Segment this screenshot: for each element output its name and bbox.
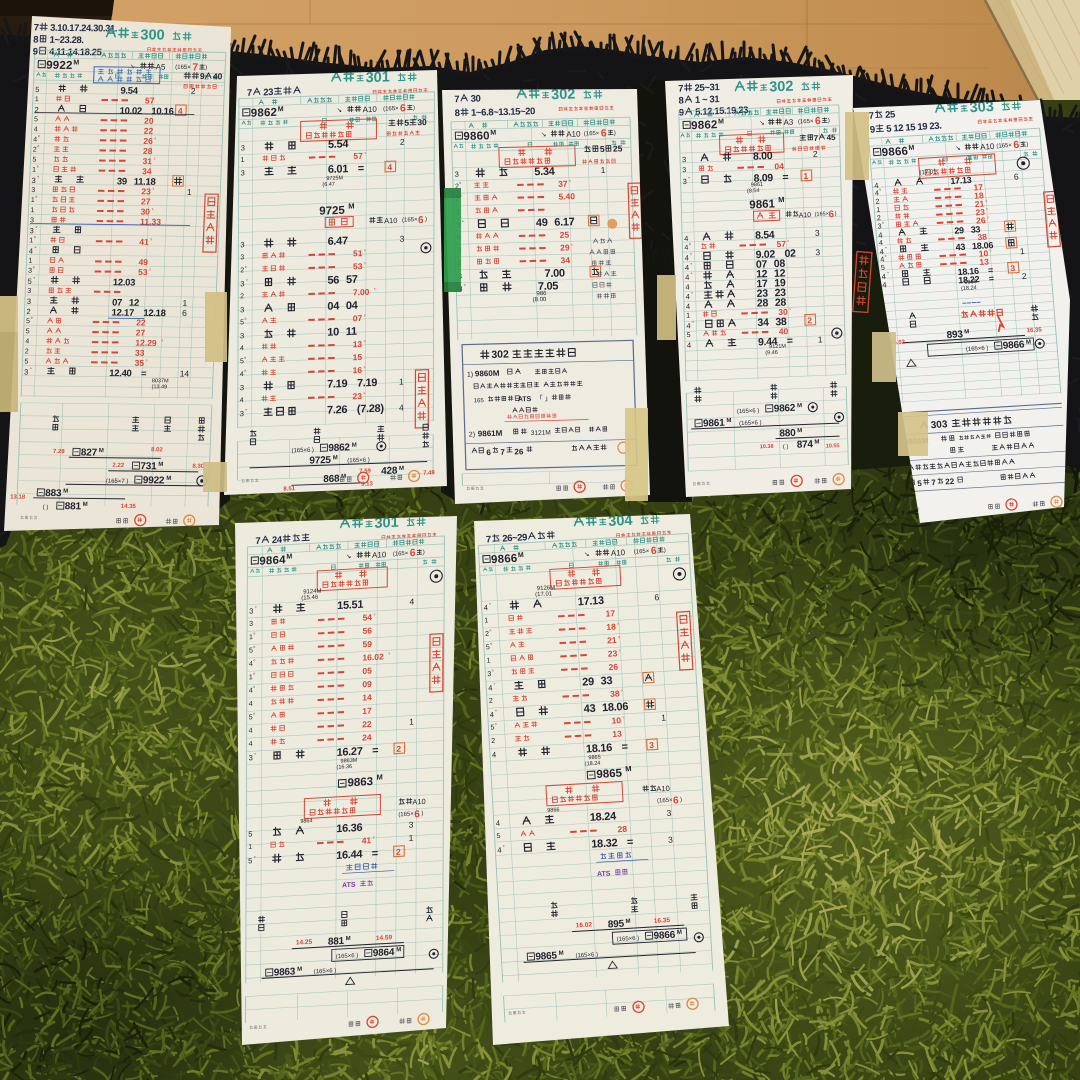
svg-text:4: 4 [488,683,493,692]
svg-text:(15.46: (15.46 [301,595,319,602]
svg-text:7.19: 7.19 [357,377,377,390]
svg-text:(165×7 ): (165×7 ) [106,479,129,485]
svg-text:3: 3 [649,740,655,750]
svg-text:43: 43 [583,703,595,716]
svg-text:49: 49 [536,217,548,229]
svg-text:5: 5 [881,265,886,272]
svg-text:1: 1 [803,171,808,181]
svg-text:25: 25 [560,230,570,240]
svg-text:5: 5 [27,277,32,286]
svg-text:↘: ↘ [584,551,590,558]
svg-text:°: ° [254,855,256,861]
svg-text:1: 1 [30,207,34,214]
svg-text:°: ° [690,262,692,268]
svg-text:M: M [376,772,382,781]
svg-text:8: 8 [455,108,460,119]
svg-text:−−−−: −−−− [962,298,982,308]
svg-text:9864: 9864 [373,947,395,959]
svg-text:7.28: 7.28 [53,449,66,455]
svg-text:(13.49: (13.49 [151,384,167,390]
svg-text:53: 53 [138,267,148,277]
svg-text:54: 54 [363,612,373,623]
svg-text:): ) [680,797,682,803]
svg-text:°: ° [255,606,257,612]
svg-text:°: ° [503,845,505,851]
svg-text:°: ° [462,220,464,226]
svg-text:(165×: (165× [798,119,814,126]
svg-text:(165×: (165× [584,131,600,137]
svg-text:(165×: (165× [402,217,418,224]
svg-text:A10: A10 [363,105,378,115]
svg-text:2: 2 [877,215,882,222]
svg-text:1: 1 [249,634,253,641]
svg-text:4: 4 [687,341,691,350]
svg-text:16.27: 16.27 [337,746,363,759]
svg-text:): ) [664,548,666,554]
svg-text:4: 4 [33,137,37,144]
svg-text:59: 59 [362,639,372,650]
svg-text:12.40: 12.40 [109,368,132,379]
svg-text:M: M [908,145,915,152]
svg-text:4: 4 [686,292,690,301]
svg-text:(17.01: (17.01 [919,169,937,176]
svg-text:6: 6 [829,209,835,220]
svg-text:30: 30 [470,94,480,105]
svg-text:3: 3 [682,167,686,174]
svg-text:22: 22 [362,719,372,730]
svg-text:9: 9 [869,125,875,136]
svg-text:4: 4 [492,750,497,759]
svg-text:5: 5 [404,118,409,128]
svg-text:3: 3 [409,819,414,829]
svg-text:9861M: 9861M [478,429,503,439]
svg-text:ˢ: ˢ [374,287,376,293]
svg-text:9: 9 [679,107,684,118]
svg-text:1: 1 [818,334,823,344]
svg-text:9866: 9866 [547,807,560,814]
svg-text:26: 26 [514,447,524,456]
svg-text:22: 22 [945,477,955,487]
svg-text:14: 14 [362,692,372,703]
svg-text:23: 23 [353,391,363,401]
svg-text:34: 34 [142,166,152,176]
svg-text:(165×6 ): (165×6 ) [336,953,359,960]
svg-text:7.00: 7.00 [544,268,565,281]
svg-text:302: 302 [769,79,794,96]
svg-text:9862: 9862 [691,119,718,132]
svg-text:26: 26 [143,136,153,146]
svg-text:M: M [346,936,351,942]
svg-text:4: 4 [240,345,244,352]
svg-text:4: 4 [249,687,253,694]
svg-text:9862: 9862 [328,442,350,454]
svg-text:(17.01: (17.01 [535,591,553,598]
svg-text:57: 57 [353,151,363,161]
svg-text:M: M [718,118,724,125]
svg-text:=: = [621,741,628,753]
svg-text:°: ° [692,321,694,327]
svg-text:303: 303 [930,419,948,431]
svg-text:4: 4 [879,240,884,247]
svg-text:2: 2 [396,744,401,754]
svg-text:=: = [627,836,634,848]
svg-text:56: 56 [327,274,339,286]
svg-text:13.18: 13.18 [10,495,26,501]
svg-text:39: 39 [117,176,127,187]
svg-text:24: 24 [362,732,372,743]
svg-text:8.54: 8.54 [755,229,775,242]
svg-text:M: M [490,130,496,137]
svg-text:): ) [425,217,427,223]
svg-text:04: 04 [327,300,340,312]
svg-text:4: 4 [685,282,689,291]
svg-text:1~23.28.: 1~23.28. [49,35,83,46]
svg-text:ˢ: ˢ [364,365,366,371]
svg-text:ˢ: ˢ [364,391,366,397]
svg-text:A10: A10 [799,212,812,219]
svg-text:4: 4 [387,162,392,172]
svg-text:7: 7 [192,62,198,73]
svg-text:8.02: 8.02 [151,447,164,453]
svg-text:↘: ↘ [541,131,547,138]
svg-text:9866: 9866 [1002,339,1025,351]
svg-text:1: 1 [409,716,414,726]
svg-text:(7.28): (7.28) [357,403,385,416]
svg-text:9.54: 9.54 [120,86,139,97]
svg-text:(18.24: (18.24 [585,761,601,768]
svg-text:(165×: (165× [398,811,414,818]
svg-text:24: 24 [272,535,283,547]
svg-text:⁰: ⁰ [253,685,255,690]
svg-text:6: 6 [414,809,420,820]
svg-text:2: 2 [191,86,196,96]
svg-text:4: 4 [878,231,883,240]
svg-text:M: M [625,919,630,925]
svg-text:4: 4 [25,338,29,345]
svg-text:2: 2 [33,147,37,154]
svg-text:=: = [372,848,378,860]
svg-text:(165×: (165× [657,798,673,805]
svg-text:2: 2 [240,293,244,300]
svg-text:5: 5 [248,856,252,865]
svg-text:8.30: 8.30 [192,464,205,470]
svg-text:9863: 9863 [347,776,373,789]
svg-text:3: 3 [815,247,820,257]
svg-text:5: 5 [26,318,30,325]
svg-text:A10: A10 [566,129,581,138]
svg-text:(165×: (165× [175,65,191,71]
svg-text:7.19: 7.19 [327,378,347,391]
svg-text:13: 13 [353,339,363,349]
svg-text:A10: A10 [980,142,995,152]
svg-text:9865: 9865 [596,767,623,780]
svg-text:16.44: 16.44 [336,848,363,861]
svg-text:4: 4 [249,701,253,708]
svg-text:1: 1 [661,713,667,723]
svg-text:6.47: 6.47 [328,235,348,248]
svg-text:3: 3 [240,409,244,418]
svg-text:M: M [778,195,784,204]
svg-text:04: 04 [774,161,784,171]
svg-text:°: ° [254,752,256,758]
svg-text:6: 6 [815,115,821,127]
svg-text:7.26: 7.26 [327,404,347,417]
svg-text:5: 5 [249,647,253,654]
svg-text:3: 3 [454,170,458,179]
svg-text:16.02: 16.02 [362,651,384,662]
svg-text:38: 38 [610,688,620,699]
svg-text:6: 6 [400,103,406,114]
svg-text:A10: A10 [611,548,626,558]
svg-text:5: 5 [240,358,244,365]
svg-text:57: 57 [346,274,358,286]
svg-text:18.16: 18.16 [586,742,613,755]
svg-text:⁰: ⁰ [459,181,461,186]
svg-text:16: 16 [353,365,363,375]
svg-text:3: 3 [249,621,253,628]
svg-text:1~6.8~13.15~20: 1~6.8~13.15~20 [471,106,535,119]
svg-text:14.35: 14.35 [121,504,137,510]
svg-text:2: 2 [875,198,880,205]
svg-text:°: ° [37,175,39,181]
svg-text:6: 6 [418,215,424,226]
svg-text:6.17: 6.17 [554,216,575,229]
svg-text:⁰: ⁰ [253,659,255,664]
svg-text:17.13: 17.13 [577,595,604,608]
svg-text:8: 8 [678,95,683,106]
svg-text:9922: 9922 [46,60,73,72]
svg-text:(165×: (165× [393,551,409,558]
svg-text:22: 22 [136,317,146,327]
svg-text:°: ° [493,683,495,689]
svg-text:16.36: 16.36 [336,822,362,835]
svg-text:「 」: 「 」 [536,394,552,402]
svg-text:40: 40 [213,71,223,81]
svg-text:1: 1 [876,207,881,214]
svg-text:7: 7 [678,83,683,94]
svg-text:1: 1 [35,96,39,103]
svg-text:(6.47: (6.47 [322,182,335,188]
svg-text:9862: 9862 [774,403,796,415]
svg-text:⁰: ⁰ [254,645,256,650]
svg-text:5: 5 [248,829,252,838]
svg-text:05: 05 [362,665,372,676]
svg-text:=: = [787,335,793,347]
svg-text:): ) [413,105,415,111]
svg-text:7: 7 [255,536,260,547]
svg-text:M: M [99,448,104,454]
svg-text:49: 49 [138,257,148,267]
svg-text:4: 4 [686,302,690,311]
svg-text:7.49: 7.49 [423,470,435,476]
svg-text:04: 04 [346,300,359,312]
svg-text:3: 3 [249,753,253,762]
svg-text:5: 5 [249,714,253,721]
svg-text:3: 3 [668,834,674,844]
svg-text:⁰: ⁰ [253,712,255,717]
svg-text:⁰: ⁰ [244,356,246,361]
svg-text:41: 41 [139,237,149,247]
svg-text:A10: A10 [412,797,425,807]
svg-text:57: 57 [145,95,155,105]
svg-text:17: 17 [362,705,372,716]
svg-text:29: 29 [560,242,570,252]
svg-text:(165×6 ): (165×6 ) [737,408,760,415]
svg-text:21: 21 [607,635,617,646]
svg-text:4: 4 [410,596,415,606]
svg-text:5: 5 [24,358,28,365]
svg-text:A3: A3 [783,118,794,127]
svg-text:M: M [158,462,163,468]
svg-text:43: 43 [955,242,965,253]
svg-text:12.03: 12.03 [113,277,136,288]
svg-text:⁰: ⁰ [254,632,256,637]
svg-text:°: ° [495,709,497,715]
svg-text:28: 28 [757,297,769,309]
svg-text:5.34: 5.34 [534,166,556,179]
svg-text:3: 3 [31,176,36,185]
svg-text:M: M [297,967,302,973]
svg-text:4: 4 [882,280,887,289]
svg-text:°: ° [33,276,35,282]
svg-text:1: 1 [31,197,35,204]
svg-text:°: ° [691,292,693,298]
svg-text:M: M [396,947,401,953]
svg-text:A10: A10 [656,784,670,794]
svg-text:23: 23 [141,186,151,196]
svg-text:(165×: (165× [996,143,1012,150]
svg-text:2: 2 [26,307,31,316]
svg-text:5: 5 [32,157,36,164]
svg-text:3: 3 [683,177,687,186]
svg-text:°: ° [35,226,37,232]
svg-text:M: M [83,502,88,508]
svg-text:1: 1 [484,617,488,624]
svg-text:=: = [372,745,378,757]
svg-text:10.38: 10.38 [760,444,774,451]
svg-text:16.35: 16.35 [654,917,671,925]
svg-text:02: 02 [784,248,796,260]
svg-text:7: 7 [814,134,819,143]
svg-text:M: M [625,764,632,773]
svg-text:⁰: ⁰ [689,243,691,248]
svg-text:22: 22 [144,126,154,136]
svg-text:5.40: 5.40 [558,191,575,201]
svg-text:(8.00: (8.00 [533,297,548,303]
svg-text:14.59: 14.59 [376,934,393,942]
svg-text:07: 07 [353,313,363,323]
svg-text:3: 3 [249,606,253,615]
svg-text:ˢ: ˢ [364,248,366,254]
svg-text:( ): ( ) [43,505,49,511]
svg-text:°: ° [245,408,247,414]
svg-text:°: ° [489,602,491,608]
svg-text:4: 4 [686,321,690,330]
svg-text:°: ° [691,272,693,278]
svg-text:2: 2 [396,847,401,857]
svg-text:731: 731 [140,461,157,472]
svg-text:10.55: 10.55 [826,443,840,450]
svg-text:°: ° [30,367,32,373]
svg-text:3: 3 [27,297,32,306]
svg-text:2: 2 [25,348,29,355]
svg-text:9860: 9860 [463,130,490,143]
svg-text:4: 4 [685,273,689,282]
svg-text:): ) [421,811,423,817]
svg-text:3: 3 [240,254,244,261]
svg-text:2): 2) [469,431,475,438]
svg-text:2: 2 [491,738,495,745]
svg-text:5: 5 [600,144,605,154]
svg-text:1: 1 [686,313,690,320]
svg-text:10: 10 [611,715,621,726]
svg-text:12.29: 12.29 [135,338,157,348]
svg-text:14.25: 14.25 [296,939,313,947]
svg-text:17.13: 17.13 [950,175,972,186]
svg-text:6: 6 [182,308,187,318]
svg-text:4: 4 [496,819,501,828]
svg-text:18.32: 18.32 [591,837,618,850]
svg-text:4: 4 [483,603,488,612]
svg-text:4: 4 [29,246,34,255]
svg-text:33: 33 [600,675,612,688]
svg-text:ATS: ATS [597,870,611,878]
svg-text:): ) [828,118,830,124]
svg-text:6: 6 [486,448,491,457]
svg-text:↘: ↘ [346,553,351,560]
svg-text:3: 3 [29,226,34,235]
svg-text:1: 1 [399,376,404,386]
svg-text:1: 1 [248,844,252,851]
svg-text:13: 13 [612,728,622,739]
svg-text:7: 7 [33,23,38,34]
svg-text:6: 6 [650,545,657,557]
svg-text:2: 2 [489,698,493,705]
svg-text:M: M [518,552,524,559]
svg-text:1: 1 [487,658,491,665]
svg-text:6: 6 [601,127,607,139]
svg-text:(9.46: (9.46 [765,350,778,356]
svg-text:°: ° [464,284,466,290]
svg-text:34: 34 [757,317,769,329]
svg-text:30: 30 [417,117,427,127]
svg-text:M: M [1026,340,1031,346]
svg-text:3121M: 3121M [531,429,551,437]
svg-text:3: 3 [400,234,405,244]
svg-text:3: 3 [31,187,35,194]
svg-text:6.01: 6.01 [328,163,348,176]
svg-text:35: 35 [134,358,144,368]
svg-text:⁰: ⁰ [244,369,246,374]
svg-text:A10: A10 [372,550,387,560]
svg-text:11: 11 [346,326,357,338]
svg-text:(165×: (165× [815,211,829,218]
svg-text:12.18: 12.18 [143,308,166,319]
svg-text:9725: 9725 [319,205,345,218]
svg-text:3: 3 [682,155,686,164]
svg-text:M: M [399,466,404,472]
svg-text:=: = [782,171,788,183]
svg-text:41: 41 [362,835,372,846]
svg-text:9860M: 9860M [475,369,500,379]
svg-text:16.02: 16.02 [576,921,593,929]
svg-text:29: 29 [954,225,964,236]
svg-text:26: 26 [608,662,618,673]
svg-text:3: 3 [240,331,244,340]
svg-text:M: M [814,439,819,445]
svg-text:9.13: 9.13 [361,481,373,487]
svg-text:6: 6 [654,592,660,602]
